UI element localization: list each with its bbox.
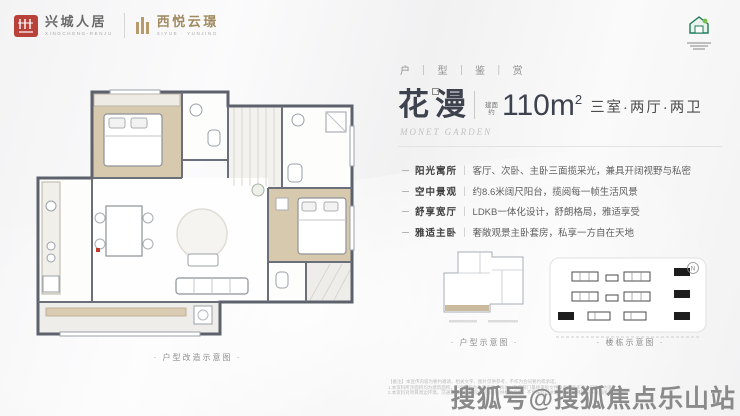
feature-item: 雅适主卧｜奢敞观景主卧套房，私享一方自在天地 — [402, 225, 732, 239]
product-name: 花漫 — [398, 88, 472, 122]
bullet-dash-icon — [402, 211, 409, 212]
bullet-dash-icon — [402, 170, 409, 171]
brand-pavilion-icon — [136, 17, 151, 34]
site-thumbnail-caption: · 楼栋示意图 · — [548, 337, 713, 348]
area-value: 110m2 — [502, 84, 582, 122]
badge-caption-lines — [682, 42, 716, 50]
area-prefix: 建面 约 — [485, 102, 498, 116]
brand-primary-subtitle: XINGCHENG-RENJU — [45, 31, 113, 36]
brand-primary-name: 兴城人居 — [45, 15, 113, 29]
title-hairline — [398, 146, 722, 147]
north-arrow-label: N — [691, 267, 695, 273]
feature-item: 空中景观｜约8.6米阔尺阳台，揽阅每一帧生活风景 — [402, 184, 732, 198]
feature-list: 阳光寓所｜客厅、次卧、主卧三面揽采光，兼具开阔视野与私密 空中景观｜约8.6米阔… — [402, 163, 732, 245]
product-mark — [432, 88, 439, 95]
main-plan-caption: · 户型改造示意图 · — [30, 352, 365, 363]
poster-canvas: 兴城人居 XINGCHENG-RENJU 西悦云璟 XIYUE · YUNJIN… — [0, 0, 740, 416]
brand-primary: 兴城人居 XINGCHENG-RENJU — [45, 15, 113, 36]
brand-seal-icon — [14, 14, 38, 38]
brand-secondary: 西悦云璟 XIYUE · YUNJING — [157, 15, 219, 36]
house-icon — [686, 15, 712, 35]
bullet-dash-icon — [402, 191, 409, 192]
bullet-dash-icon — [402, 232, 409, 233]
unit-thumbnail-plan — [442, 250, 527, 330]
feature-item: 阳光寓所｜客厅、次卧、主卧三面揽采光，兼具开阔视野与私密 — [402, 163, 732, 177]
feature-item: 舒享宽厅｜LDKB一体化设计，舒朗格局，雅适享受 — [402, 204, 732, 218]
layout-description: 三室·两厅·两卫 — [590, 96, 703, 117]
brand-secondary-name: 西悦云璟 — [157, 15, 219, 29]
header-divider — [124, 13, 125, 38]
watermark-text: 搜狐号@搜狐焦点乐山站 — [451, 379, 736, 415]
floor-plan-drawing — [30, 86, 365, 344]
site-plan-thumbnail: N — [548, 256, 713, 341]
unit-thumbnail-caption: · 户型示意图 · — [432, 337, 537, 348]
header-brand-group: 兴城人居 XINGCHENG-RENJU 西悦云璟 XIYUE · YUNJIN… — [14, 13, 219, 38]
cert-badge — [682, 15, 716, 51]
title-divider — [474, 91, 475, 119]
title-row: 花漫 建面 约 110m2 三室·两厅·两卫 — [398, 84, 703, 122]
brand-secondary-subtitle: XIYUE · YUNJING — [157, 31, 219, 36]
subtitle-english: MONET GARDEN — [400, 127, 492, 137]
section-eyebrow: 户 ｜ 型 ｜ 鉴 ｜ 赏 — [400, 62, 526, 77]
